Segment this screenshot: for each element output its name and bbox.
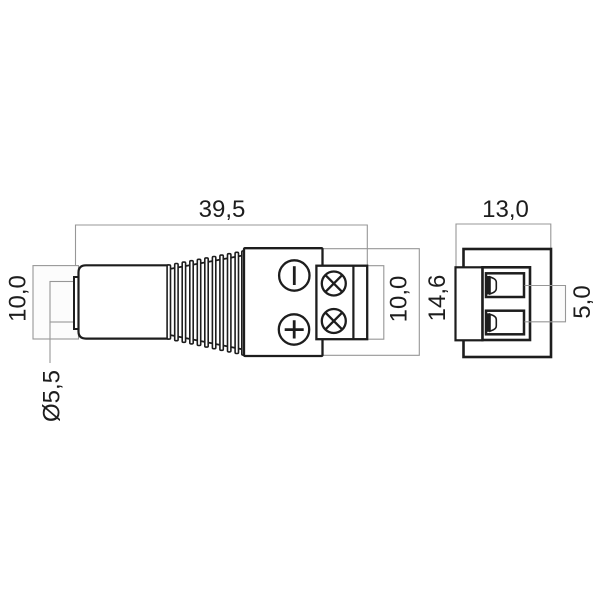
svg-text:14,6: 14,6 bbox=[424, 275, 451, 322]
svg-text:Ø5,5: Ø5,5 bbox=[39, 370, 66, 422]
svg-text:10,0: 10,0 bbox=[5, 275, 32, 322]
svg-text:5,0: 5,0 bbox=[569, 285, 596, 318]
svg-text:39,5: 39,5 bbox=[199, 196, 246, 223]
svg-text:13,0: 13,0 bbox=[482, 196, 529, 223]
svg-text:10,0: 10,0 bbox=[386, 276, 413, 323]
